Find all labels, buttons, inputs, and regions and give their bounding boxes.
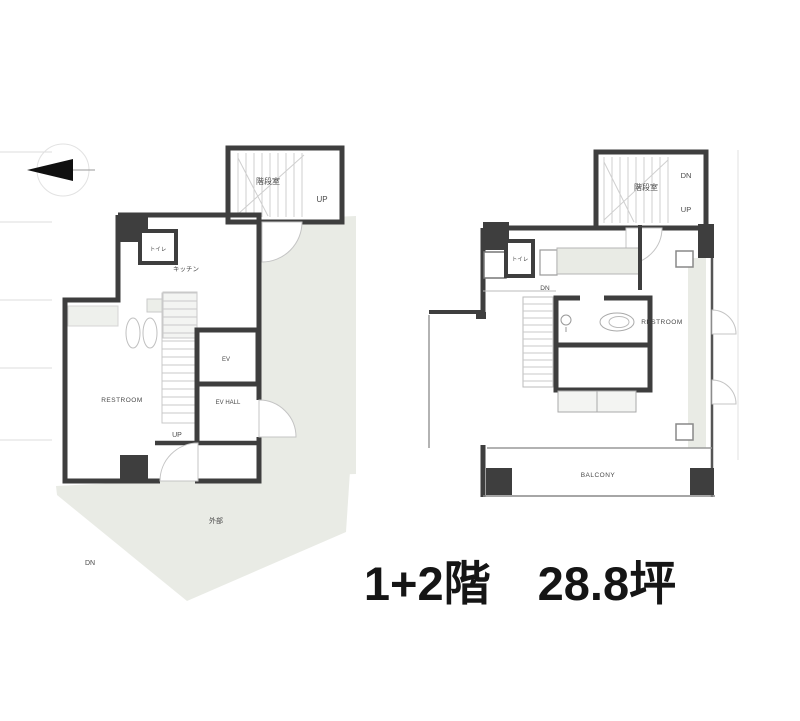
floor2-stairwell-up-label: UP (681, 205, 691, 214)
floor1-plan: 階段室 UP トイレ キッチン (56, 148, 356, 601)
floorplan-canvas: 階段室 UP トイレ キッチン (0, 0, 800, 721)
floor2-plan: 階段室 DN UP トイレ DN (429, 152, 736, 497)
floor1-corner-block (120, 455, 148, 481)
floor1-room-label: RESTROOM (101, 397, 143, 404)
floor2-stairwell: 階段室 DN UP (596, 152, 706, 228)
floor1-stairwell: 階段室 UP (228, 148, 342, 222)
floor2-right-shade (688, 258, 706, 448)
floor2-counter (557, 248, 640, 274)
caption-text: 1+2階 28.8坪 (364, 557, 676, 610)
floor1-toilet-label: トイレ (150, 247, 167, 253)
floor2-stairwell-dn-label: DN (681, 171, 692, 180)
floor2-sofa (558, 391, 636, 412)
floor2-topright-block (698, 224, 714, 258)
floor1-exterior-label: 外部 (209, 516, 223, 525)
floor2-toilet-label: トイレ (512, 257, 529, 263)
floor2-balcony-label: BALCONY (581, 472, 616, 479)
floorplan-page: 階段室 UP トイレ キッチン (0, 0, 800, 721)
floor1-window-band (68, 306, 118, 326)
floor2-room-label: RESTROOM (641, 319, 683, 326)
floor1-exterior-dn-label: DN (85, 560, 95, 567)
floor2-leftwall-tick (476, 312, 486, 319)
floor1-stairwell-up-label: UP (316, 195, 327, 204)
floor1-kitchen-label: キッチン (173, 265, 199, 273)
floor2-fridge (540, 250, 557, 275)
floor2-service-box (484, 252, 506, 278)
floor2-stairwell-label: 階段室 (634, 182, 658, 192)
floor2-balcony: BALCONY (483, 445, 715, 497)
floor1-elevator: EV (197, 330, 258, 384)
floor2-toilet-room: トイレ (506, 241, 533, 276)
floor1-toilet-room: トイレ (140, 231, 176, 263)
floor1-stairwell-label: 階段室 (256, 176, 280, 186)
floor2-dn-label: DN (540, 285, 550, 292)
floor1-stairs-up-label: UP (172, 432, 182, 439)
floor1-ev-hall-label: EV HALL (216, 400, 241, 406)
floor1-elevator-label: EV (222, 357, 230, 363)
